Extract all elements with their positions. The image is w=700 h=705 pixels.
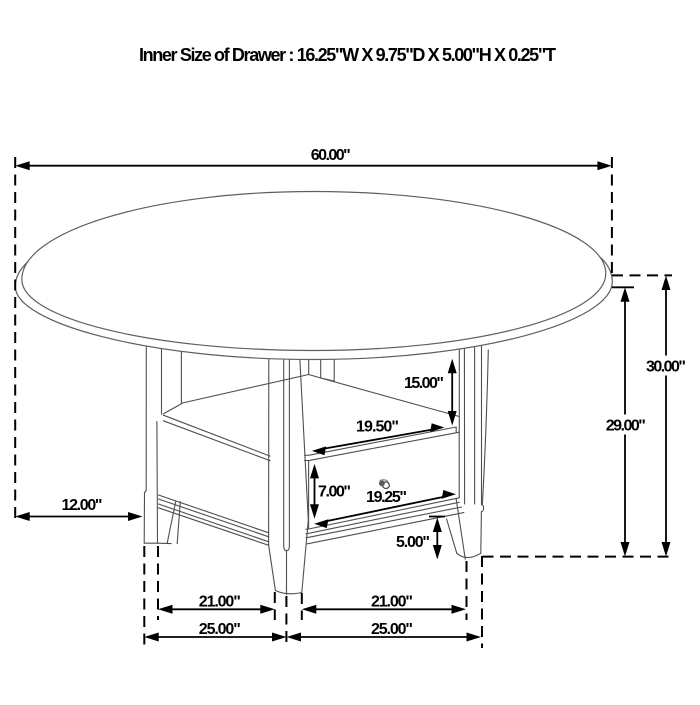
svg-text:25.00": 25.00" <box>199 621 241 638</box>
svg-text:15.00": 15.00" <box>404 375 444 392</box>
svg-text:25.00": 25.00" <box>371 621 413 638</box>
svg-text:19.50": 19.50" <box>356 419 399 436</box>
svg-text:60.00": 60.00" <box>311 147 351 164</box>
svg-text:7.00": 7.00" <box>318 484 351 501</box>
svg-text:29.00": 29.00" <box>606 418 646 435</box>
svg-text:21.00": 21.00" <box>199 594 241 611</box>
svg-text:19.25": 19.25" <box>366 489 407 506</box>
svg-text:12.00": 12.00" <box>62 497 103 514</box>
svg-text:21.00": 21.00" <box>371 594 413 611</box>
svg-text:30.00": 30.00" <box>646 359 686 376</box>
svg-text:Inner Size of Drawer : 16.25"W: Inner Size of Drawer : 16.25"W X 9.75"D … <box>139 45 556 65</box>
svg-text:5.00": 5.00" <box>396 534 430 551</box>
